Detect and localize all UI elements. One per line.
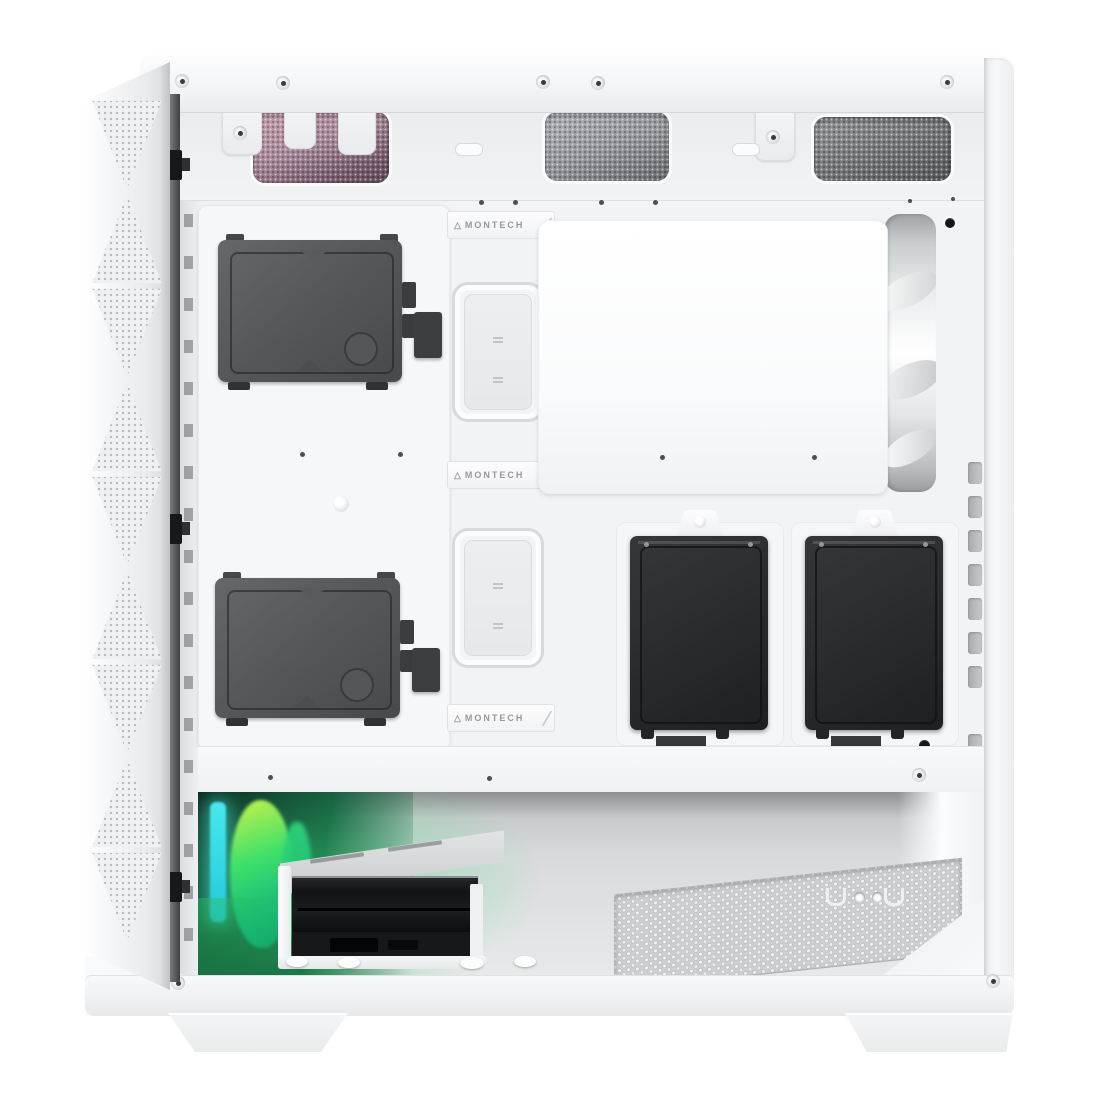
screw-hole (300, 452, 305, 457)
standoff-hole (951, 197, 955, 201)
mount-slot (455, 143, 483, 156)
shroud-divider-bar (198, 746, 984, 796)
mesh-triangle (90, 286, 164, 380)
hdd-sata-connector (414, 312, 442, 358)
rear-exhaust-fan (884, 214, 936, 492)
top-frame-screw (940, 75, 954, 89)
mesh-triangle (90, 662, 164, 756)
divider-screw (912, 768, 926, 782)
ssd-tab-hole (869, 516, 881, 528)
mesh-triangle-column (90, 98, 164, 952)
floor-standoff (514, 956, 536, 967)
front-vent-slits (184, 130, 193, 956)
tie-down-slot (968, 496, 982, 518)
montech-logo-icon: △ (454, 713, 461, 724)
grommet-mark (493, 623, 503, 631)
grommet-rubber (464, 540, 532, 656)
fan-blade (884, 352, 936, 408)
mesh-triangle (90, 192, 164, 286)
case-foot-right (845, 1013, 1013, 1052)
cable-grommet-bottom (452, 528, 544, 668)
ssd-notch (641, 728, 654, 739)
ssd-top-highlight (813, 541, 935, 544)
grommet-mark (493, 337, 503, 345)
rear-edge-strip (984, 58, 1014, 1010)
mesh-triangle (90, 756, 164, 850)
ssd-screw-glint (923, 542, 928, 547)
mesh-triangle (90, 98, 164, 192)
grommet-mark (493, 583, 503, 591)
cable-hook-hole (854, 892, 865, 903)
montech-logo-icon: △ (454, 220, 461, 231)
ssd-screw-glint (644, 542, 649, 547)
floor-standoff (286, 956, 308, 967)
ssd-screw-glint (748, 542, 753, 547)
bracket-screw (766, 130, 780, 144)
montech-badge-label: MONTECH (465, 713, 525, 723)
top-frame-screw (536, 75, 550, 89)
hdd-spindle-cut (344, 332, 378, 366)
hdd-sata-tab (400, 620, 414, 644)
drive-connector-block (388, 940, 418, 950)
psu-basement (198, 792, 984, 976)
drive-connector-block (330, 938, 378, 952)
ssd-notch (816, 728, 829, 739)
cage-drive-slot-line (298, 908, 472, 911)
tie-down-slot (968, 632, 982, 654)
hdd-foot (366, 382, 388, 390)
floor-standoff (338, 957, 360, 968)
screw-hole (398, 452, 403, 457)
mesh-triangle (90, 850, 164, 944)
montech-badge-label: MONTECH (465, 220, 525, 230)
thumbscrew-hole (333, 496, 349, 512)
mount-slot (732, 143, 760, 156)
cage-drive-front (292, 876, 478, 934)
bottom-frame (85, 975, 1014, 1016)
standoff-hole (653, 200, 658, 205)
mesh-panel-edge-shade (160, 58, 170, 994)
screw-hole (812, 455, 817, 460)
divider-screw-hole (268, 775, 273, 780)
ssd-notch (891, 728, 904, 739)
ssd-tab-hole (694, 516, 706, 528)
fan-blade (884, 421, 936, 475)
screw-hole (660, 455, 665, 460)
hdd-spindle-cut (340, 668, 374, 702)
front-panel-clip-stem (182, 158, 190, 171)
badge-slash-icon (533, 711, 553, 726)
top-frame-screw (276, 76, 290, 90)
hdd-sata-tab (402, 282, 416, 308)
top-vent-middle (545, 112, 669, 181)
tie-down-slot (968, 530, 982, 552)
case-foot-left (168, 1013, 348, 1052)
montech-badge: △ MONTECH (447, 704, 555, 732)
bottom-frame-screw (986, 974, 1000, 988)
cable-hook-hole (872, 892, 883, 903)
floor-standoff (460, 957, 484, 969)
ssd-left-groove (640, 546, 762, 724)
standoff-hole (479, 200, 484, 205)
tie-down-slot (968, 462, 982, 484)
tie-down-slot (968, 598, 982, 620)
cage-rail-right (470, 884, 483, 966)
mesh-triangle (90, 474, 164, 568)
top-frame-screw (175, 74, 189, 88)
vent-mesh-texture (814, 117, 951, 181)
cage-rail-left (278, 866, 291, 964)
pc-case-interior-photo: △ MONTECH △ MONTECH △ MONTECH (0, 0, 1100, 1100)
grommet-mark (493, 377, 503, 385)
cable-hook (884, 888, 904, 906)
divider-screw-hole (487, 776, 492, 781)
front-mesh-panel (84, 58, 170, 994)
mesh-triangle (90, 380, 164, 474)
cable-grommet-top (452, 282, 544, 422)
vent-mesh-texture (545, 112, 669, 181)
top-vent-rear (814, 117, 951, 181)
hdd-foot (228, 382, 250, 390)
cage-rail-bottom (278, 956, 486, 969)
standoff-hole (513, 200, 518, 205)
montech-badge-label: MONTECH (465, 470, 525, 480)
hdd-foot (364, 718, 386, 726)
ssd-notch (716, 728, 729, 739)
montech-logo-icon: △ (454, 470, 461, 481)
tie-down-slot (968, 564, 982, 586)
top-frame (140, 55, 1014, 113)
bracket-screw (233, 126, 247, 140)
grommet-rubber (464, 294, 532, 410)
tie-down-slot (968, 666, 982, 688)
mesh-triangle (90, 568, 164, 662)
front-panel-clip-stem (182, 522, 190, 535)
standoff-hole (908, 199, 912, 203)
ssd-right-groove (815, 546, 937, 724)
front-panel-clip-stem (182, 880, 190, 893)
top-frame-screw (591, 76, 605, 90)
fan-cover-plate (538, 220, 888, 494)
cable-hole (945, 218, 955, 228)
hdd-sata-connector (412, 648, 440, 692)
ssd-top-highlight (638, 541, 760, 544)
cable-hook (826, 888, 846, 906)
hdd-foot (226, 718, 248, 726)
ssd-screw-glint (819, 542, 824, 547)
fan-blade (884, 263, 936, 320)
standoff-hole (599, 200, 604, 205)
